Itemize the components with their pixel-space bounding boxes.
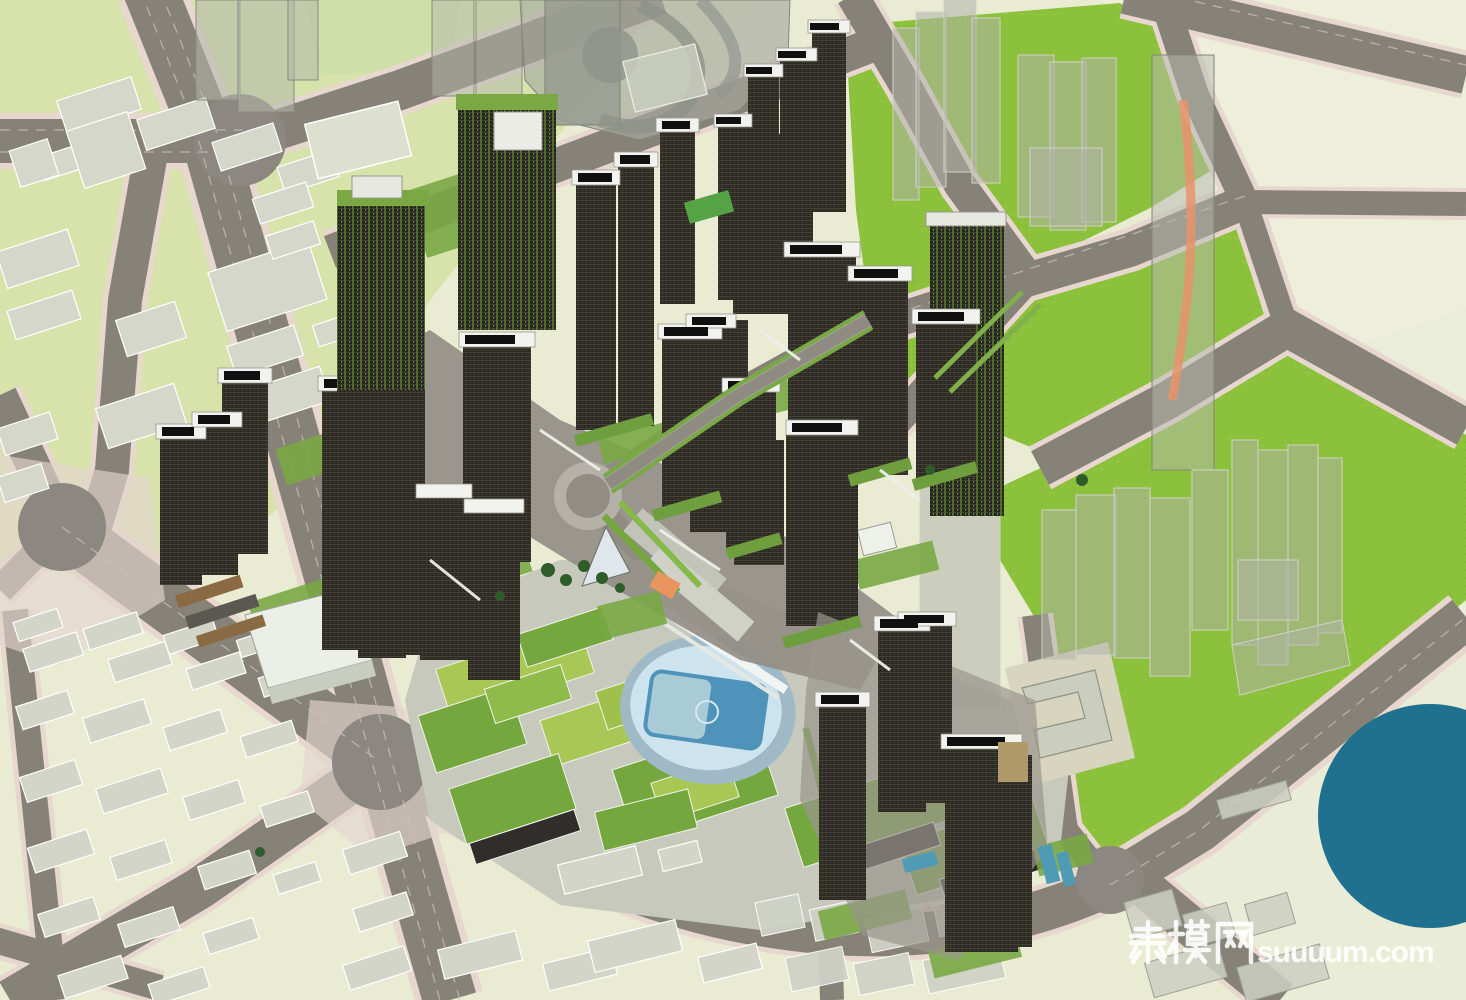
svg-text:suuuum.com: suuuum.com — [1257, 936, 1434, 969]
